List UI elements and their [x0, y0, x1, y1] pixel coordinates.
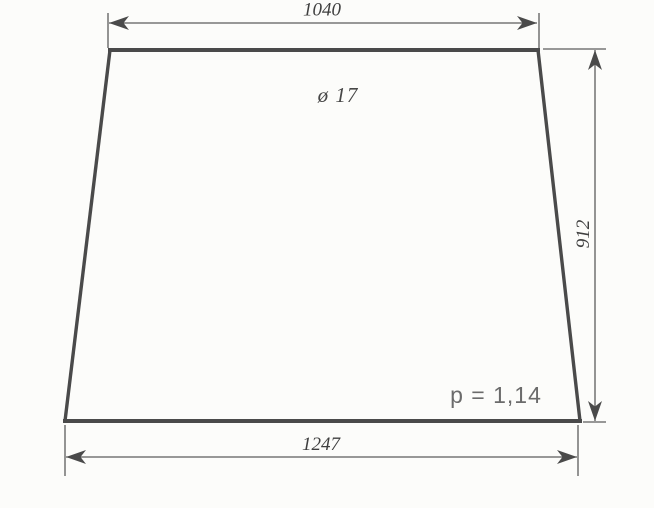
- hole-diameter-label: ø 17: [317, 83, 359, 107]
- technical-drawing-page: 1040 912 1247 ø 17 p = 1,14: [0, 0, 654, 508]
- trapezoid-left-edge: [65, 50, 110, 421]
- right-height-label: 912: [573, 219, 594, 248]
- top-width-dimension: 1040: [108, 0, 539, 48]
- top-width-label: 1040: [303, 0, 342, 21]
- trapezoid-dimension-drawing: 1040 912 1247 ø 17 p = 1,14: [0, 0, 654, 508]
- bottom-width-dimension: 1247: [65, 425, 578, 476]
- bottom-width-label: 1247: [302, 434, 342, 455]
- p-value-label: p = 1,14: [450, 382, 542, 408]
